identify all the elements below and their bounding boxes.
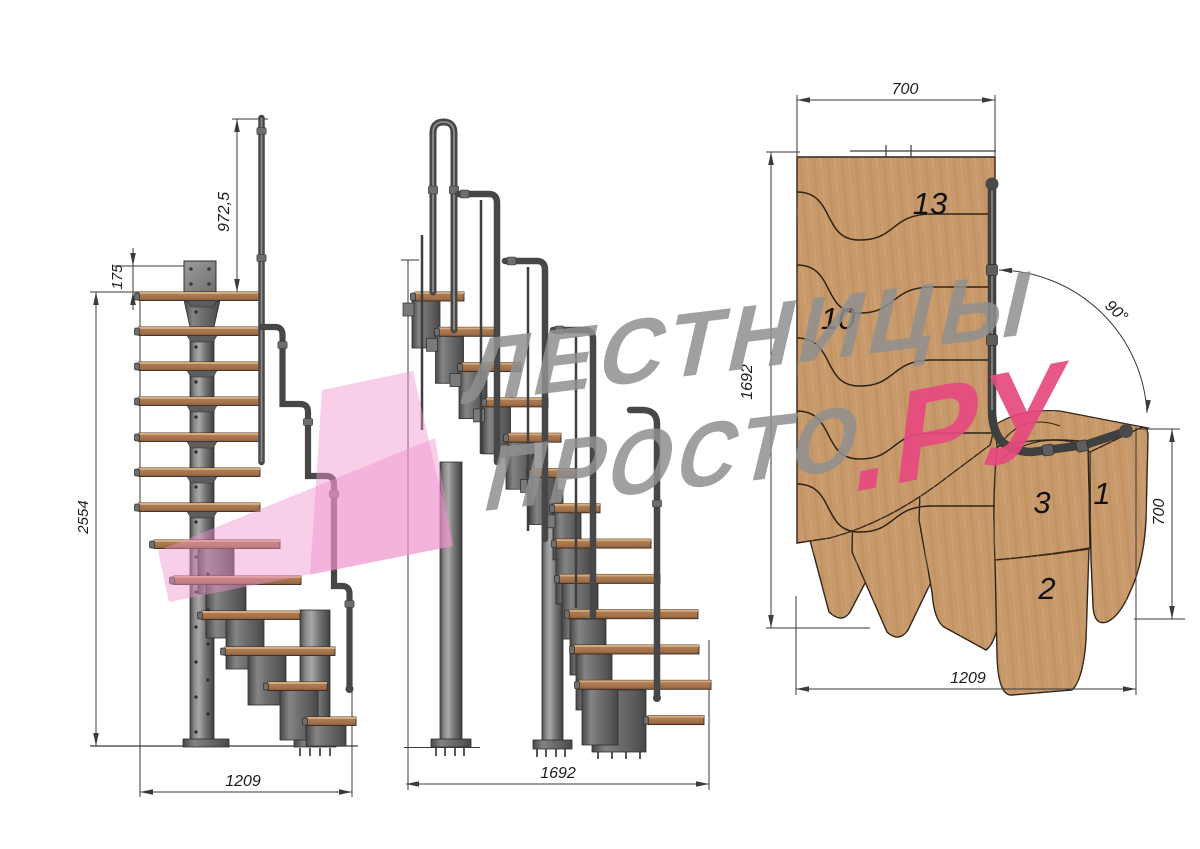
svg-text:2: 2 xyxy=(1037,571,1055,606)
svg-text:175: 175 xyxy=(109,264,126,290)
svg-text:2554: 2554 xyxy=(75,500,92,534)
svg-text:1: 1 xyxy=(1093,476,1110,511)
svg-text:972,5: 972,5 xyxy=(216,192,233,232)
svg-text:3: 3 xyxy=(1033,485,1050,520)
svg-text:1209: 1209 xyxy=(225,773,261,790)
svg-text:1692: 1692 xyxy=(540,765,576,782)
svg-text:700: 700 xyxy=(1151,499,1168,526)
svg-text:700: 700 xyxy=(892,81,919,98)
svg-text:13: 13 xyxy=(913,186,947,221)
svg-text:1209: 1209 xyxy=(950,670,986,687)
